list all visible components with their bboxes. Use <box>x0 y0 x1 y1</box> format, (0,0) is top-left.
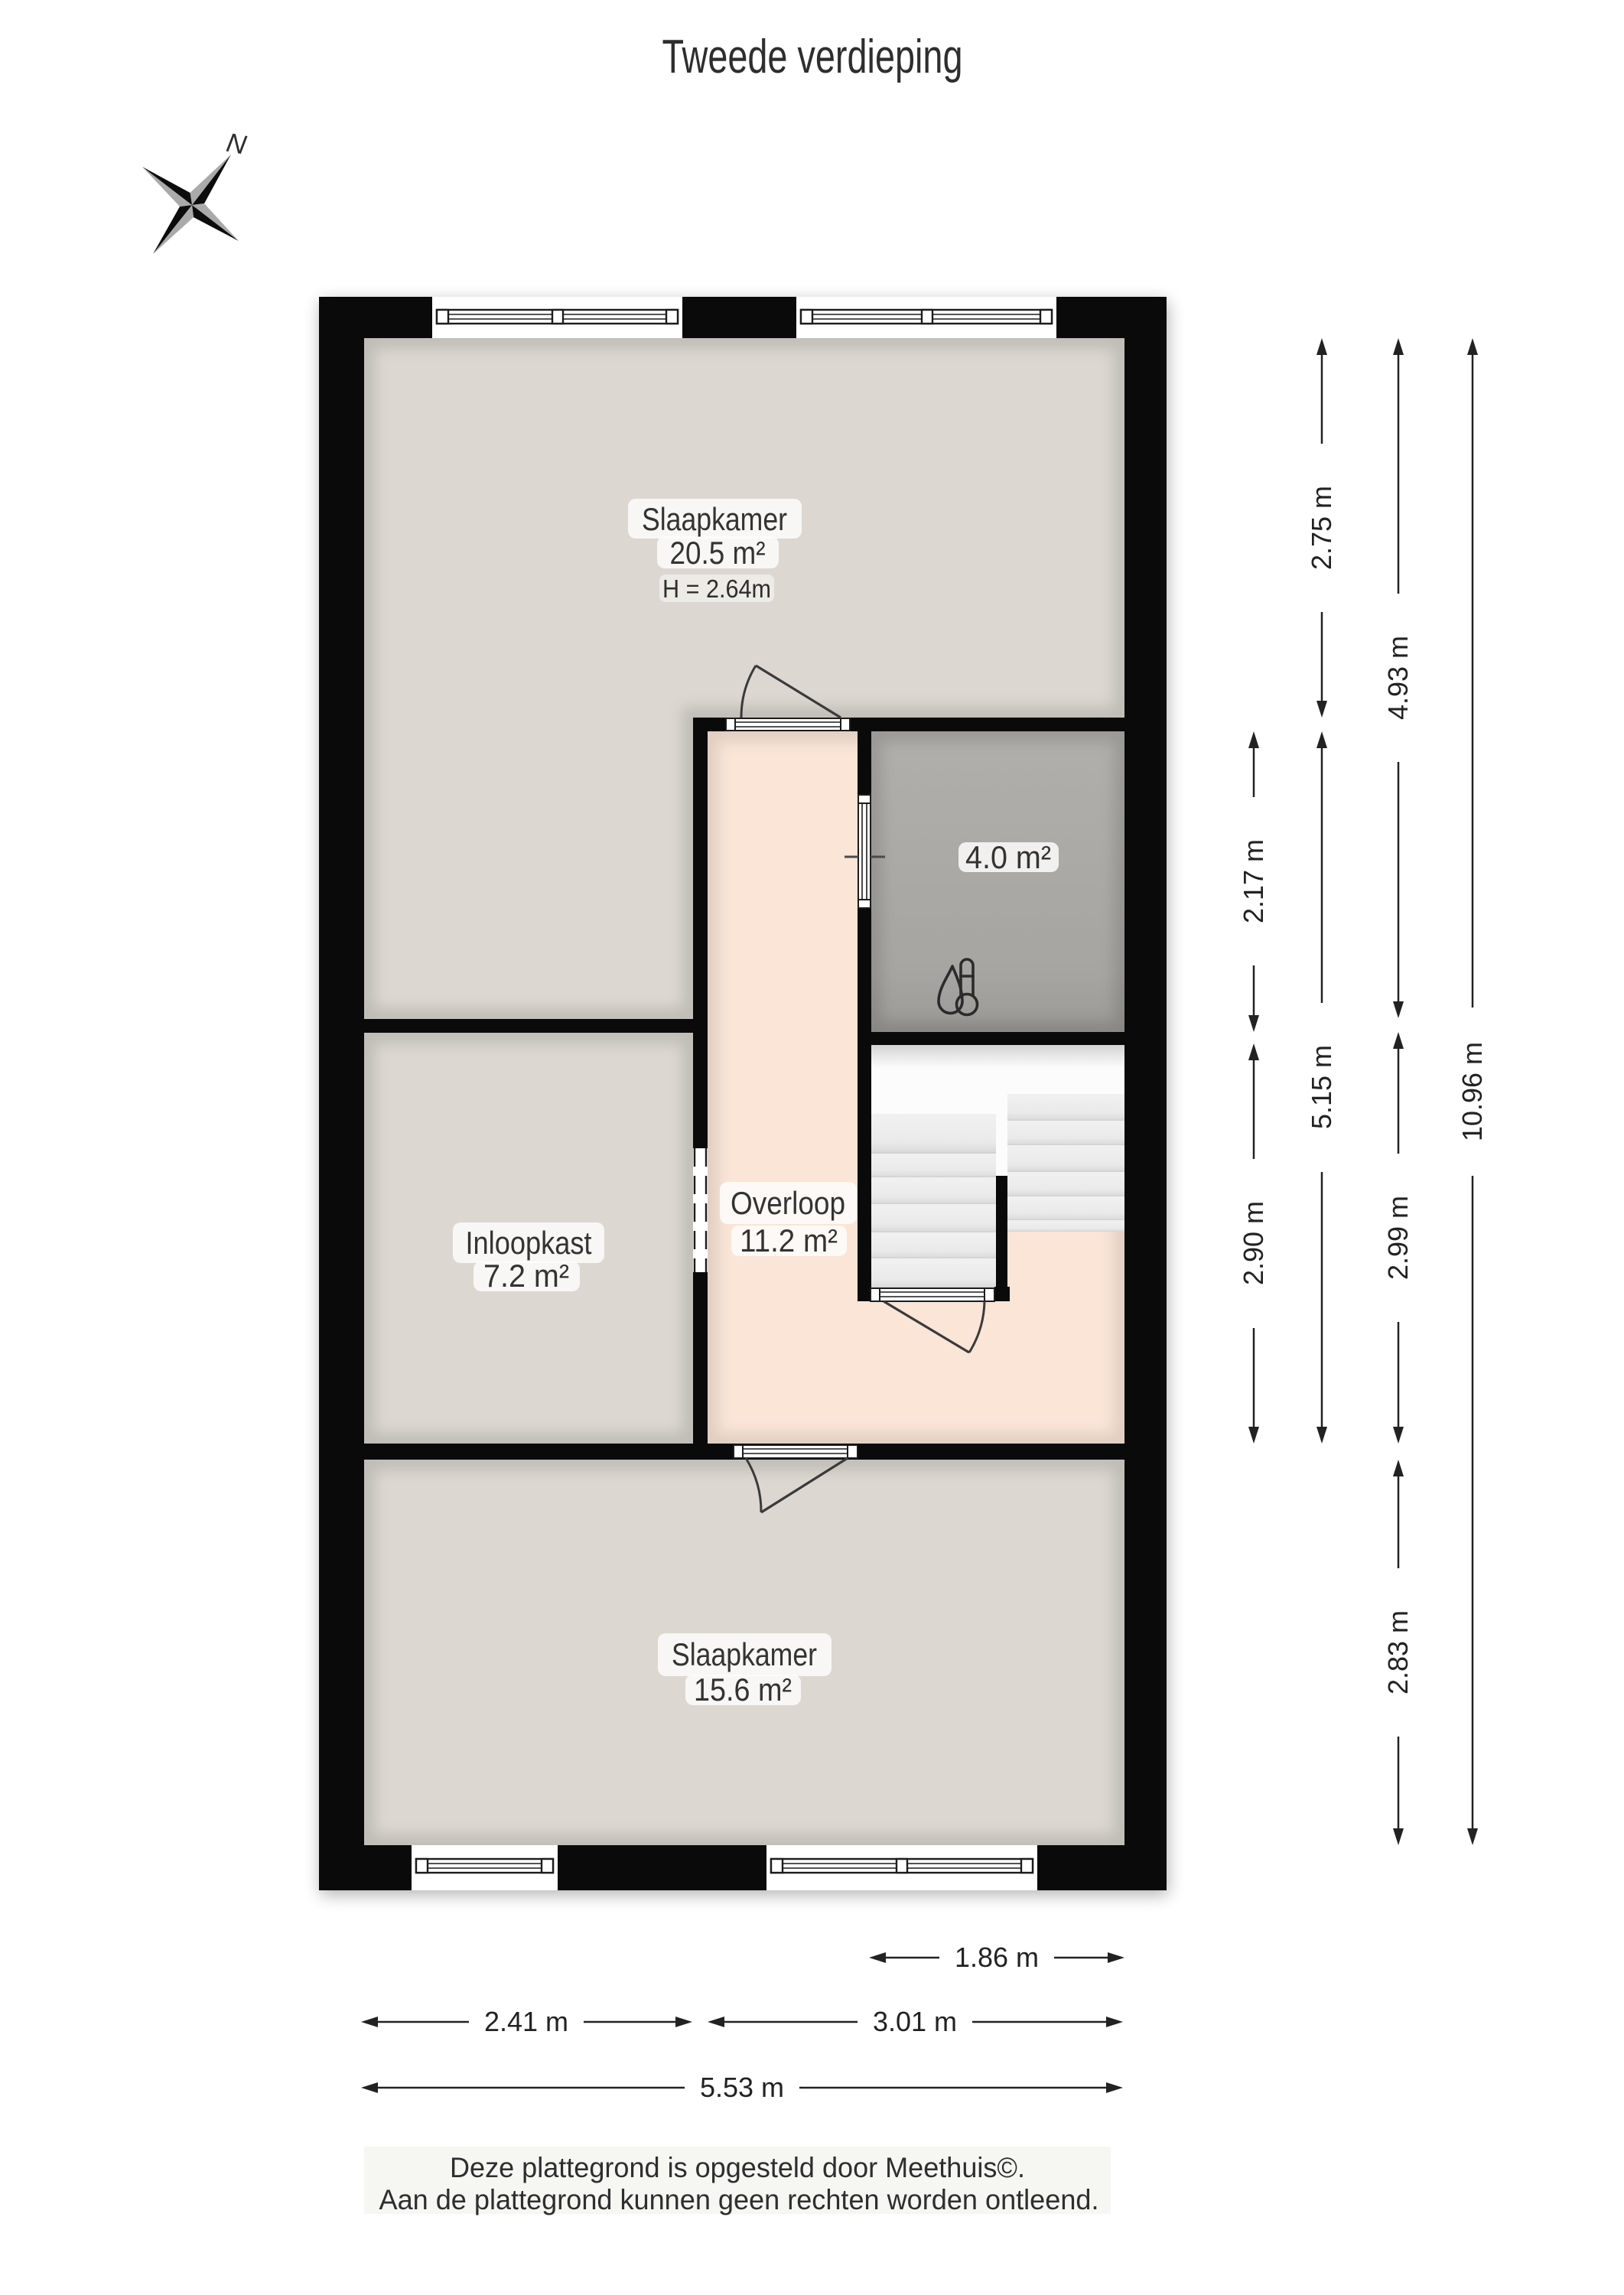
svg-text:Inloopkast: Inloopkast <box>466 1225 592 1261</box>
svg-text:Aan de plattegrond kunnen geen: Aan de plattegrond kunnen geen rechten w… <box>379 2184 1099 2215</box>
svg-text:Tweede verdieping: Tweede verdieping <box>662 31 963 83</box>
svg-text:2.99 m: 2.99 m <box>1382 1196 1414 1280</box>
svg-text:2.17 m: 2.17 m <box>1238 839 1269 923</box>
svg-text:4.0 m²: 4.0 m² <box>965 839 1051 875</box>
svg-text:5.53 m: 5.53 m <box>700 2072 784 2103</box>
svg-text:Slaapkamer: Slaapkamer <box>672 1636 817 1672</box>
svg-text:Slaapkamer: Slaapkamer <box>642 501 787 537</box>
svg-text:Deze plattegrond is opgesteld: Deze plattegrond is opgesteld door Meeth… <box>450 2152 1025 2183</box>
svg-text:5.15 m: 5.15 m <box>1306 1045 1337 1129</box>
svg-text:11.2 m²: 11.2 m² <box>740 1222 838 1258</box>
svg-text:2.41 m: 2.41 m <box>484 2006 568 2037</box>
svg-text:7.2 m²: 7.2 m² <box>483 1258 569 1294</box>
svg-text:20.5 m²: 20.5 m² <box>670 535 766 571</box>
svg-text:4.93 m: 4.93 m <box>1382 636 1414 720</box>
svg-text:H = 2.64m: H = 2.64m <box>662 575 771 603</box>
svg-text:Overloop: Overloop <box>731 1185 845 1221</box>
svg-text:15.6 m²: 15.6 m² <box>694 1672 792 1707</box>
svg-text:1.86 m: 1.86 m <box>955 1942 1039 1973</box>
svg-text:10.96 m: 10.96 m <box>1456 1042 1488 1141</box>
svg-text:2.75 m: 2.75 m <box>1306 486 1337 570</box>
svg-text:2.83 m: 2.83 m <box>1382 1610 1414 1694</box>
svg-text:2.90 m: 2.90 m <box>1238 1201 1269 1285</box>
svg-text:3.01 m: 3.01 m <box>873 2006 957 2037</box>
